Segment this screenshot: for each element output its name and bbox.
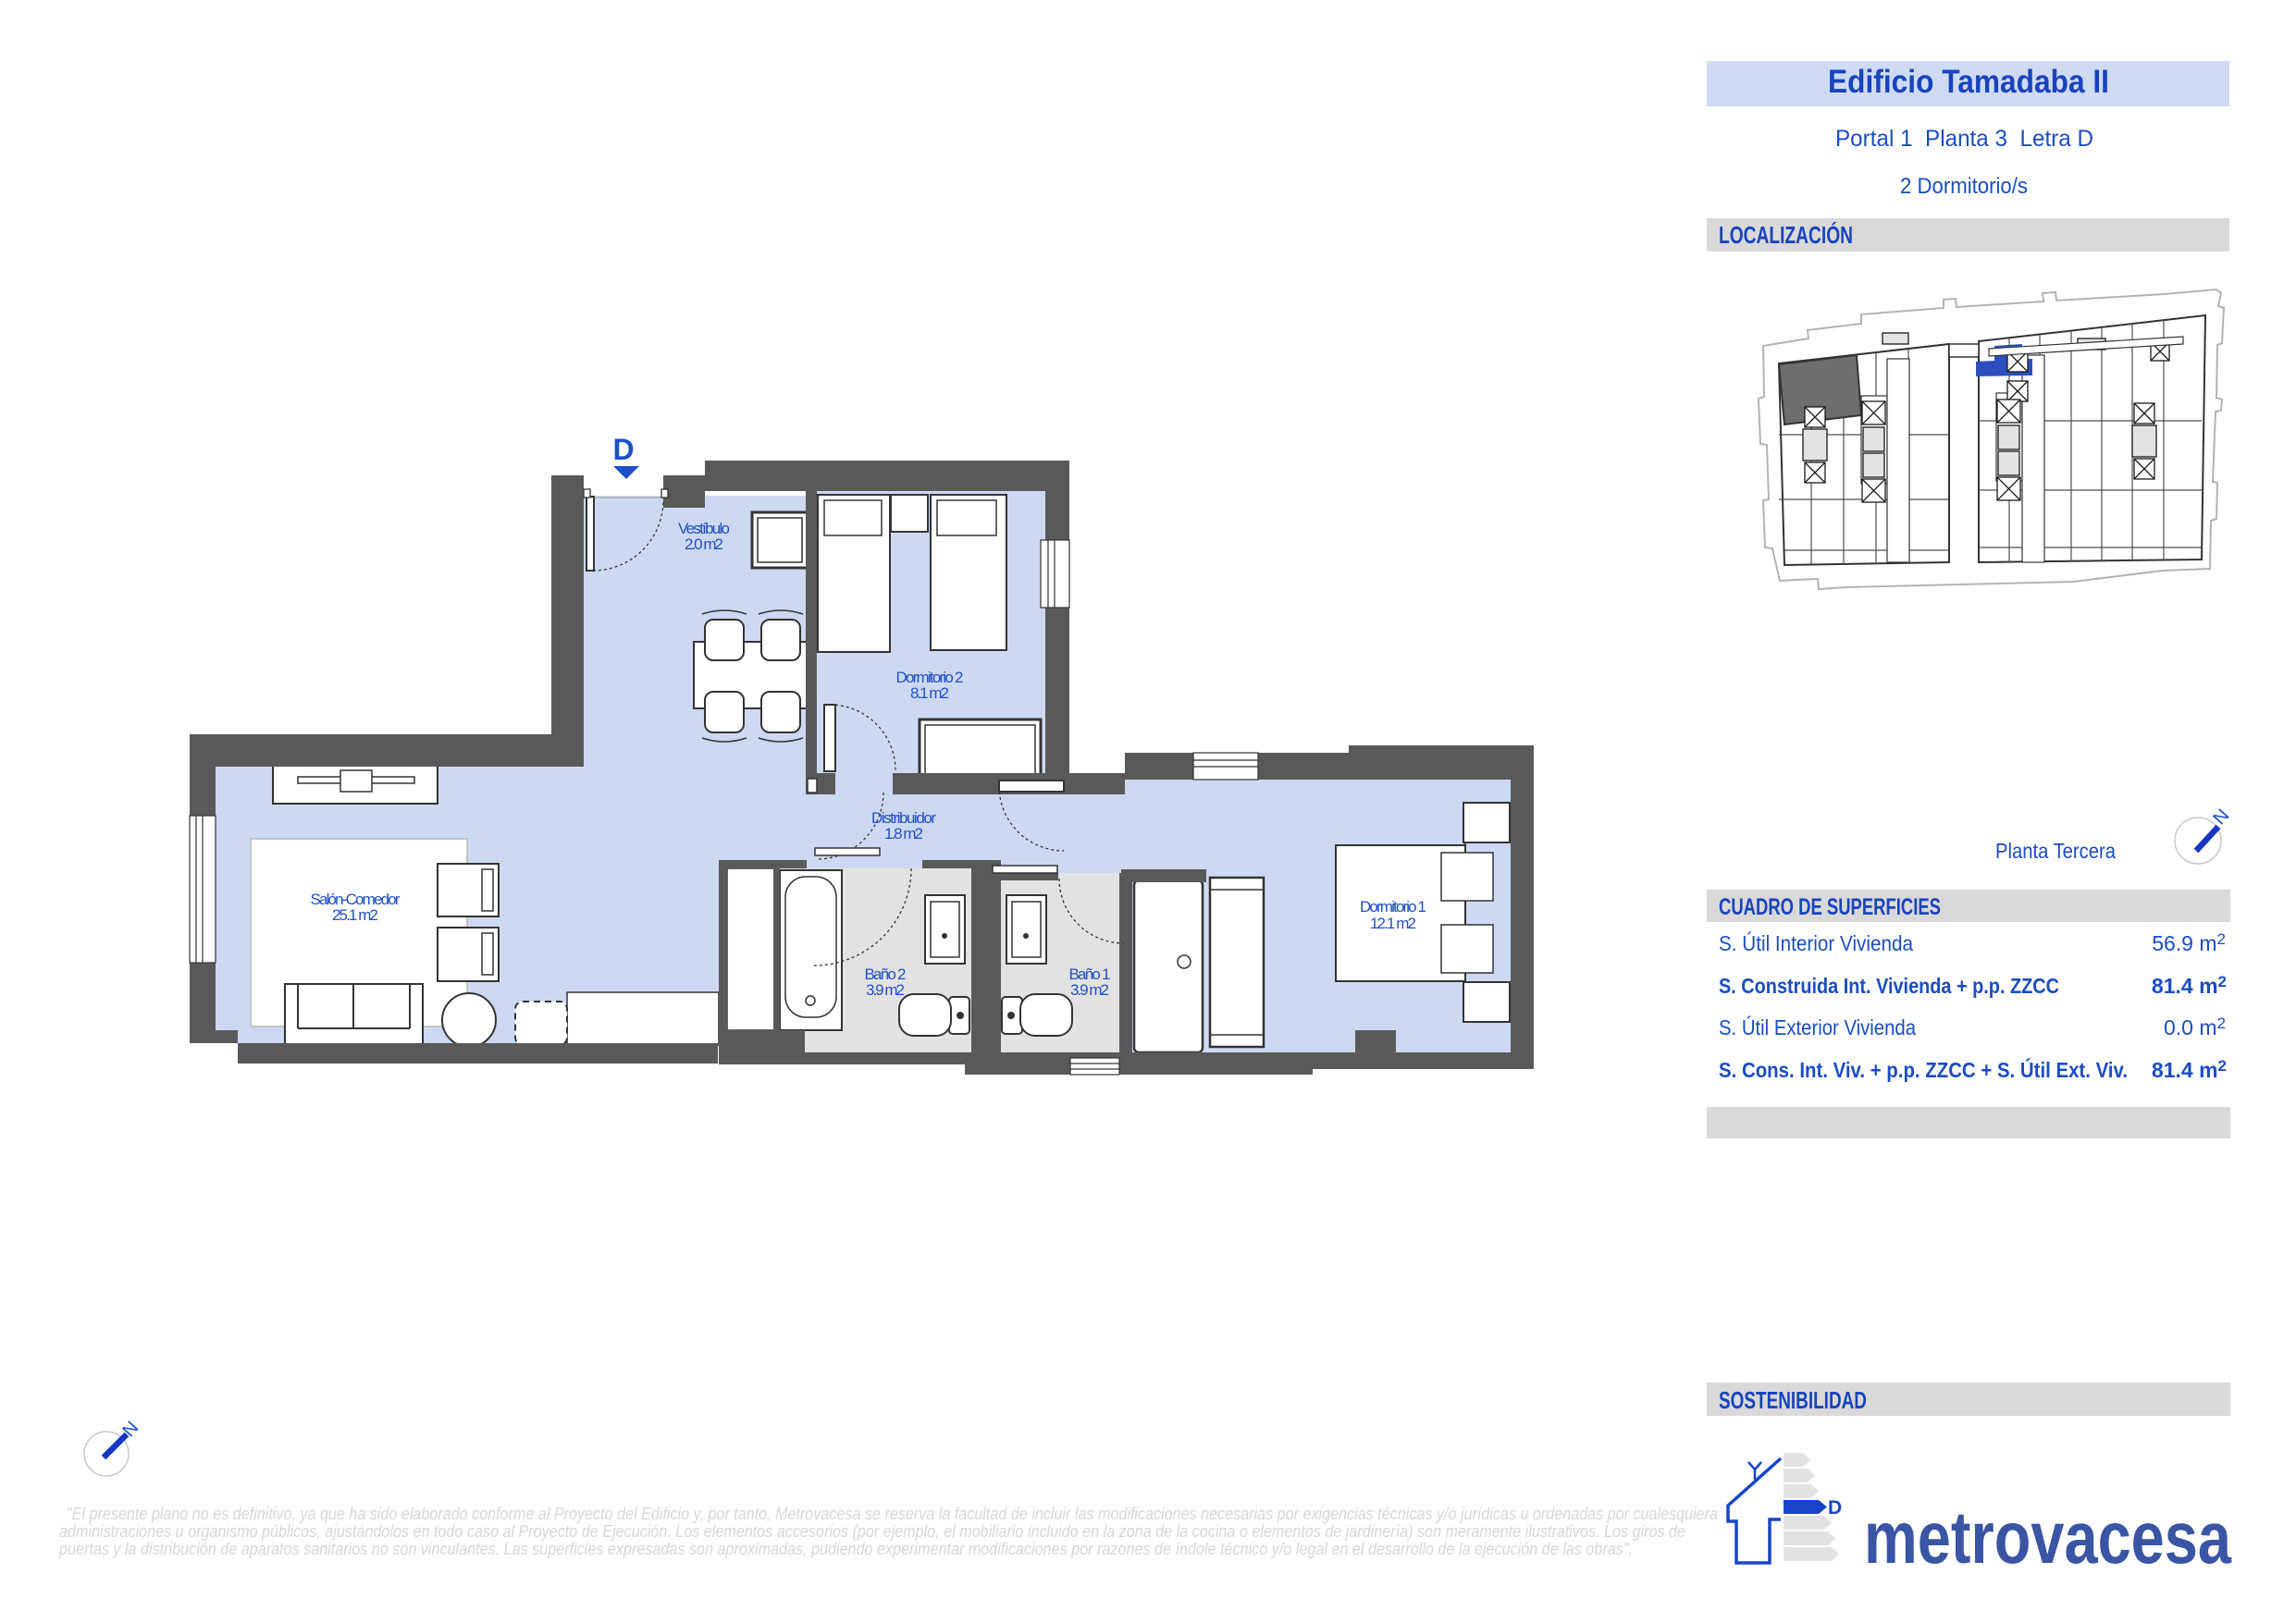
svg-text:2.0 m2: 2.0 m2 xyxy=(685,535,723,553)
svg-text:puertas y la distribución de a: puertas y la distribución de aparatos sa… xyxy=(58,1540,1633,1558)
svg-text:Dormitorio 1: Dormitorio 1 xyxy=(1360,898,1426,916)
svg-text:Portal 1 Planta 3 Letra D: Portal 1 Planta 3 Letra D xyxy=(1835,126,2093,152)
svg-text:metrovacesa: metrovacesa xyxy=(1864,1496,2231,1579)
svg-text:2 Dormitorio/s: 2 Dormitorio/s xyxy=(1900,174,2028,199)
svg-text:56.9 m2: 56.9 m2 xyxy=(2152,930,2226,955)
svg-text:S. Cons. Int. Viv. + p.p. ZZCC: S. Cons. Int. Viv. + p.p. ZZCC + S. Útil… xyxy=(1719,1057,2128,1082)
svg-text:S. Útil Interior Vivienda: S. Útil Interior Vivienda xyxy=(1719,931,1913,955)
svg-text:D: D xyxy=(612,433,634,466)
svg-text:SOSTENIBILIDAD: SOSTENIBILIDAD xyxy=(1719,1386,1867,1414)
svg-text:D: D xyxy=(1828,1497,1842,1518)
svg-text:3.9 m2: 3.9 m2 xyxy=(866,981,905,999)
svg-text:3.9 m2: 3.9 m2 xyxy=(1070,981,1109,999)
svg-text:Planta Tercera: Planta Tercera xyxy=(1995,839,2116,863)
svg-text:25.1 m2: 25.1 m2 xyxy=(332,906,378,924)
svg-text:LOCALIZACIÓN: LOCALIZACIÓN xyxy=(1719,221,1853,249)
svg-text:S. Útil Exterior Vivienda: S. Útil Exterior Vivienda xyxy=(1719,1015,1916,1039)
svg-text:Edificio Tamadaba II: Edificio Tamadaba II xyxy=(1828,64,2109,100)
svg-text:81.4 m2: 81.4 m2 xyxy=(2152,973,2227,998)
svg-text:S. Construida Int. Vivienda +: S. Construida Int. Vivienda + p.p. ZZCC xyxy=(1719,974,2059,998)
svg-text:0.0 m2: 0.0 m2 xyxy=(2164,1014,2226,1039)
svg-text:CUADRO DE SUPERFICIES: CUADRO DE SUPERFICIES xyxy=(1719,894,1941,920)
svg-text:81.4 m2: 81.4 m2 xyxy=(2152,1057,2227,1082)
svg-text:1.8 m2: 1.8 m2 xyxy=(884,825,923,842)
svg-text:"El presente plano no es defin: "El presente plano no es definitivo, ya … xyxy=(67,1505,1718,1523)
svg-text:administraciones u organismo p: administraciones u organismo públicos, a… xyxy=(59,1522,1685,1541)
svg-text:8.1 m2: 8.1 m2 xyxy=(910,684,949,702)
svg-text:12.1 m2: 12.1 m2 xyxy=(1370,915,1416,932)
